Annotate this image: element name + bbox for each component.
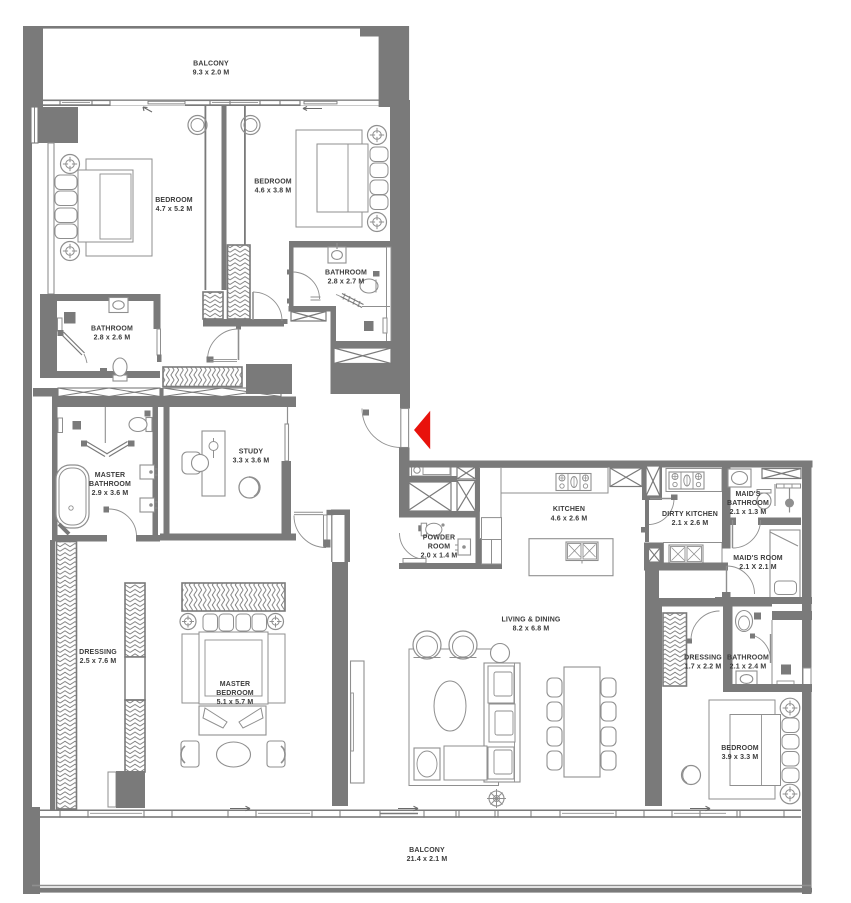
svg-text:2.8 x 2.6 M: 2.8 x 2.6 M (94, 335, 131, 342)
svg-text:KITCHEN: KITCHEN (553, 506, 585, 513)
svg-text:BATHROOM: BATHROOM (91, 326, 133, 333)
svg-text:3.3 x 3.6 M: 3.3 x 3.6 M (233, 458, 270, 465)
svg-text:MAID'S: MAID'S (735, 491, 760, 498)
svg-text:5.1 x 5.7 M: 5.1 x 5.7 M (217, 699, 254, 706)
svg-text:3.9 x 3.3 M: 3.9 x 3.3 M (722, 754, 759, 761)
svg-text:2.0 x 1.4 M: 2.0 x 1.4 M (421, 553, 458, 560)
svg-text:BATHROOM: BATHROOM (727, 655, 769, 662)
svg-text:LIVING & DINING: LIVING & DINING (501, 617, 560, 624)
svg-text:BATHROOM: BATHROOM (325, 270, 367, 277)
svg-text:DRESSING: DRESSING (684, 655, 722, 662)
svg-text:2.1 x 1.3 M: 2.1 x 1.3 M (730, 509, 767, 516)
svg-text:BATHROOM: BATHROOM (727, 500, 769, 507)
svg-text:STUDY: STUDY (239, 449, 264, 456)
svg-text:1.7 x 2.2 M: 1.7 x 2.2 M (685, 664, 722, 671)
svg-text:21.4 x 2.1 M: 21.4 x 2.1 M (407, 856, 448, 863)
svg-text:BALCONY: BALCONY (193, 61, 229, 68)
svg-text:BEDROOM: BEDROOM (721, 745, 759, 752)
svg-text:MAID'S ROOM: MAID'S ROOM (733, 555, 783, 562)
svg-text:2.1 X 2.1 M: 2.1 X 2.1 M (739, 564, 776, 571)
svg-text:DIRTY KITCHEN: DIRTY KITCHEN (662, 511, 718, 518)
svg-text:8.2 x 6.8 M: 8.2 x 6.8 M (513, 626, 550, 633)
svg-text:4.7 x 5.2 M: 4.7 x 5.2 M (156, 206, 193, 213)
svg-text:2.5 x 7.6 M: 2.5 x 7.6 M (80, 658, 117, 665)
svg-text:MASTER: MASTER (95, 472, 125, 479)
svg-text:BEDROOM: BEDROOM (216, 690, 254, 697)
svg-text:BEDROOM: BEDROOM (254, 179, 292, 186)
svg-text:ROOM: ROOM (428, 544, 450, 551)
svg-text:BATHROOM: BATHROOM (89, 481, 131, 488)
svg-text:2.1 x 2.6 M: 2.1 x 2.6 M (672, 520, 709, 527)
svg-text:MASTER: MASTER (220, 681, 250, 688)
svg-text:2.9 x 3.6 M: 2.9 x 3.6 M (92, 490, 129, 497)
svg-text:9.3 x 2.0 M: 9.3 x 2.0 M (193, 70, 230, 77)
svg-text:BEDROOM: BEDROOM (155, 197, 193, 204)
svg-text:BALCONY: BALCONY (409, 847, 445, 854)
svg-text:4.6 x 3.8 M: 4.6 x 3.8 M (255, 188, 292, 195)
svg-text:2.8 x 2.7 M: 2.8 x 2.7 M (328, 279, 365, 286)
svg-text:2.1 x 2.4 M: 2.1 x 2.4 M (730, 664, 767, 671)
svg-text:POWDER: POWDER (423, 535, 455, 542)
svg-text:4.6 x 2.6 M: 4.6 x 2.6 M (551, 516, 588, 523)
svg-text:DRESSING: DRESSING (79, 649, 117, 656)
